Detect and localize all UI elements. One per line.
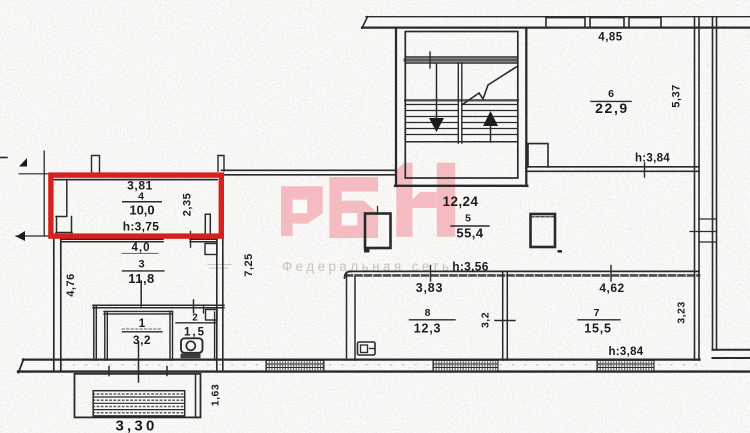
svg-text:h:3,75: h:3,75: [123, 220, 160, 234]
svg-text:h:3,56: h:3,56: [452, 259, 489, 273]
svg-text:2: 2: [192, 313, 198, 324]
svg-text:4: 4: [138, 191, 144, 203]
svg-text:1,5: 1,5: [184, 327, 206, 339]
svg-text:h:3,84: h:3,84: [635, 153, 670, 165]
svg-text:h:3,84: h:3,84: [608, 346, 643, 358]
svg-text:12,24: 12,24: [443, 194, 479, 209]
svg-text:1,63: 1,63: [210, 384, 222, 406]
svg-text:1: 1: [139, 318, 146, 330]
svg-text:3,30: 3,30: [116, 418, 158, 433]
svg-text:12,3: 12,3: [414, 321, 442, 335]
svg-text:4,85: 4,85: [598, 32, 622, 44]
svg-text:15,5: 15,5: [584, 321, 612, 335]
svg-text:3,23: 3,23: [676, 301, 688, 323]
svg-text:3,2: 3,2: [480, 312, 492, 328]
svg-text:8: 8: [425, 307, 431, 319]
svg-text:11,8: 11,8: [128, 271, 155, 286]
svg-text:3: 3: [138, 259, 144, 271]
svg-text:6: 6: [608, 88, 614, 100]
svg-text:10,0: 10,0: [129, 203, 154, 218]
svg-text:3,83: 3,83: [416, 281, 444, 295]
svg-text:7,25: 7,25: [243, 253, 255, 276]
svg-text:4,62: 4,62: [599, 281, 624, 295]
svg-text:7: 7: [594, 307, 600, 319]
svg-text:5,37: 5,37: [671, 84, 683, 107]
svg-text:4,0: 4,0: [132, 242, 151, 254]
svg-text:2,35: 2,35: [182, 193, 194, 216]
svg-text:4,76: 4,76: [65, 273, 77, 296]
svg-text:3,2: 3,2: [133, 333, 151, 347]
svg-text:55,4: 55,4: [456, 226, 484, 241]
svg-text:22,9: 22,9: [595, 100, 629, 116]
svg-text:5: 5: [465, 213, 471, 225]
